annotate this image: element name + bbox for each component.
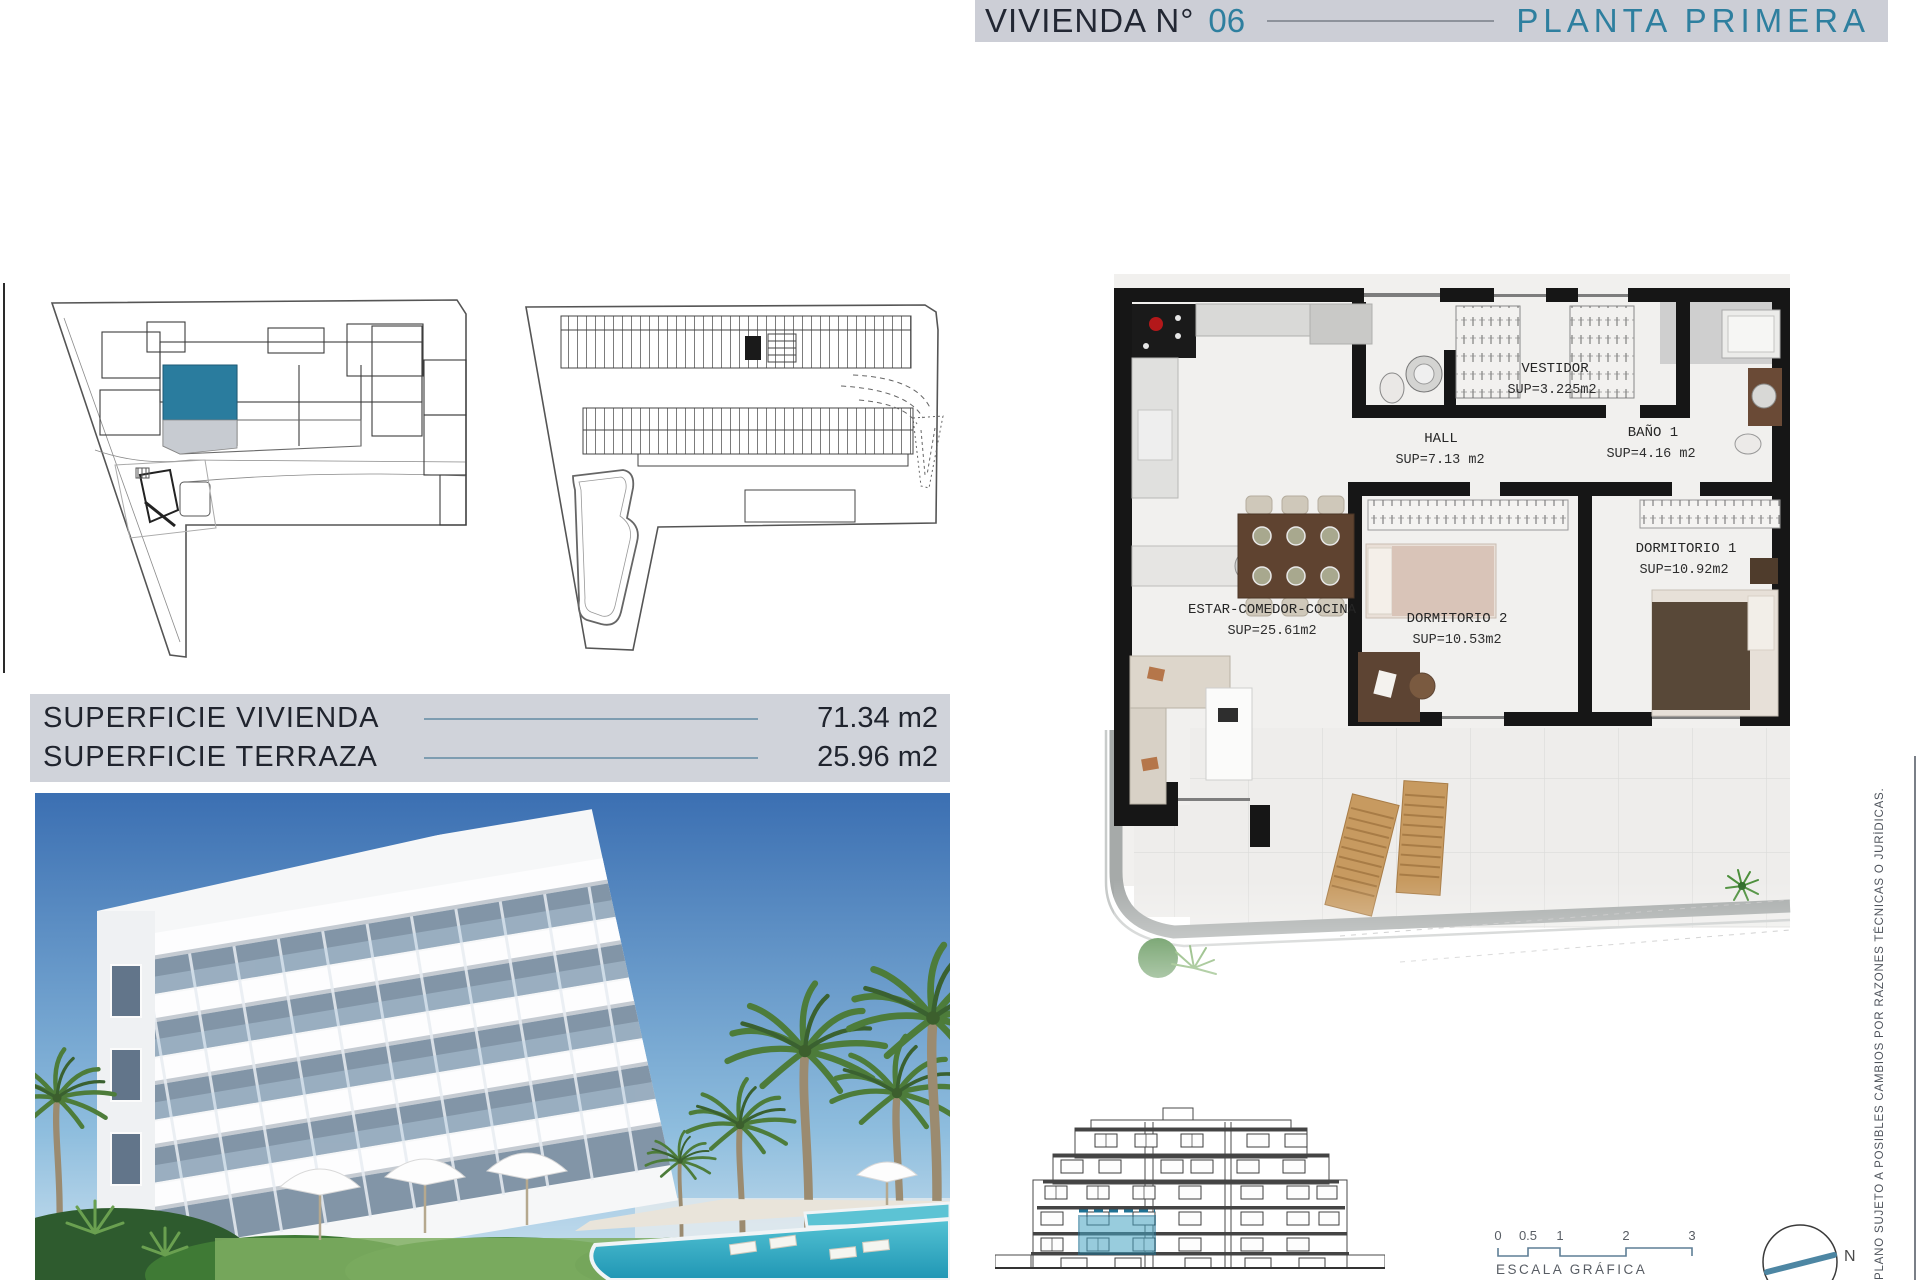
scale-tick: 1 (1556, 1228, 1563, 1243)
highlighted-unit (163, 365, 237, 420)
plan-sheet-page: VIVIENDA N° 06 PLANTA PRIMERA (0, 0, 1920, 1280)
north-needle (1767, 1255, 1834, 1272)
area-leader-line (424, 757, 758, 759)
area-value: 71.34 m2 (786, 702, 938, 735)
title-bar: VIVIENDA N° 06 PLANTA PRIMERA (975, 0, 1888, 42)
floor-plan: VESTIDOR SUP=3.225m2 HALL SUP=7.13 m2 BA… (1100, 260, 1800, 1050)
disclaimer-text: PLANO SUJETO A POSIBLES CAMBIOS POR RAZO… (1874, 808, 1898, 1280)
scale-tick: 3 (1688, 1228, 1695, 1243)
room-label-vestidor: VESTIDOR (1521, 361, 1589, 377)
scale-bar: 0 0.5 1 2 3 ESCALA GRÁFICA (1492, 1226, 1742, 1280)
room-sup-vestidor: SUP=3.225m2 (1507, 383, 1596, 398)
scale-tick: 2 (1622, 1228, 1629, 1243)
title-suffix: PLANTA PRIMERA (1516, 2, 1870, 40)
highlighted-unit-elevation (1079, 1216, 1155, 1254)
room-sup-estar: SUP=25.61m2 (1227, 624, 1316, 639)
title-prefix: VIVIENDA N° (985, 2, 1194, 40)
site-plan-technical (523, 290, 971, 678)
elevator-core (745, 336, 761, 360)
room-label-bano1: BAÑO 1 (1628, 424, 1678, 441)
north-compass-icon: N (1738, 1216, 1888, 1280)
site-plan-location (20, 270, 498, 668)
area-row-terraza: SUPERFICIE TERRAZA 25.96 m2 (43, 741, 938, 774)
area-row-vivienda: SUPERFICIE VIVIENDA 71.34 m2 (43, 702, 938, 735)
area-value: 25.96 m2 (786, 741, 938, 774)
scale-bar-label: ESCALA GRÁFICA (1496, 1262, 1647, 1277)
page-edge-line-left (3, 283, 5, 673)
dining-area (1238, 496, 1354, 616)
scale-tick: 0 (1494, 1228, 1501, 1243)
building-elevation (995, 1092, 1385, 1280)
scale-tick: 0.5 (1519, 1228, 1537, 1243)
page-edge-line-right (1914, 756, 1916, 1280)
unit-terrace (163, 420, 237, 454)
title-rule (1267, 20, 1494, 22)
area-label: SUPERFICIE VIVIENDA (43, 702, 418, 735)
room-label-hall: HALL (1424, 431, 1458, 447)
unit-number: 06 (1208, 2, 1245, 40)
area-leader-line (424, 718, 758, 720)
room-label-estar: ESTAR-COMEDOR-COCINA (1188, 602, 1357, 618)
room-label-dorm2: DORMITORIO 2 (1407, 611, 1508, 627)
room-sup-dorm1: SUP=10.92m2 (1639, 563, 1728, 578)
room-label-dorm1: DORMITORIO 1 (1636, 541, 1737, 557)
area-label: SUPERFICIE TERRAZA (43, 741, 418, 774)
north-label: N (1844, 1248, 1856, 1265)
building-render-photo (35, 793, 950, 1280)
areas-table: SUPERFICIE VIVIENDA 71.34 m2 SUPERFICIE … (30, 694, 950, 782)
room-sup-hall: SUP=7.13 m2 (1395, 453, 1484, 468)
room-sup-bano1: SUP=4.16 m2 (1606, 447, 1695, 462)
room-sup-dorm2: SUP=10.53m2 (1412, 633, 1501, 648)
